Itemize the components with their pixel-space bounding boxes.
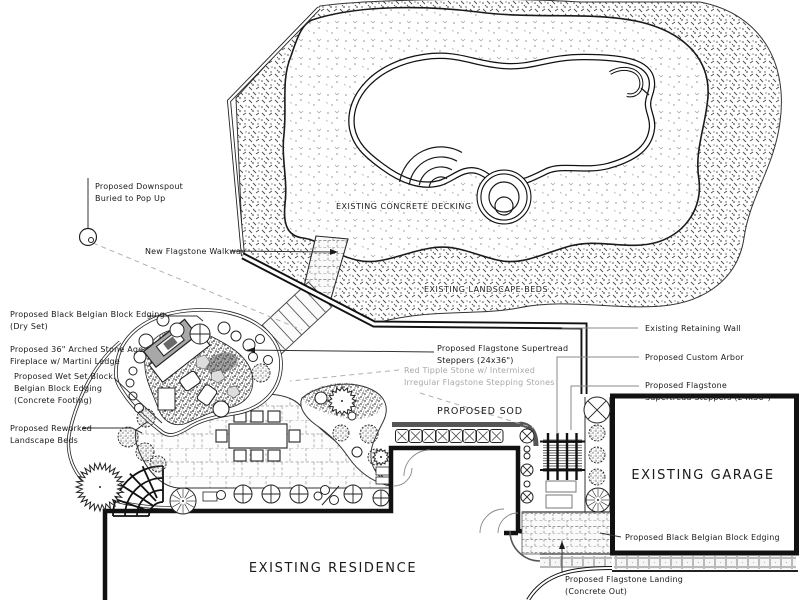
supertread-stepper-icon xyxy=(463,430,476,443)
shrub-icon xyxy=(330,496,339,505)
wheel-shrub-icon xyxy=(586,488,610,512)
supertread-stepper-icon xyxy=(450,430,463,443)
stippled-shrub-icon xyxy=(150,456,166,472)
shrub-icon xyxy=(524,453,530,459)
stippled-shrub-icon xyxy=(252,364,270,382)
label-residence: EXISTING RESIDENCE xyxy=(249,561,417,576)
callout-steppers-right-line1: Proposed Flagstone xyxy=(645,381,727,390)
shrub-icon xyxy=(348,412,356,420)
stippled-shrub-icon xyxy=(589,447,605,463)
landscape-plan-canvas: Proposed Downspout Buried to Pop Up New … xyxy=(0,0,800,600)
supertread-stepper-icon xyxy=(409,430,422,443)
label-concrete-decking: EXISTING CONCRETE DECKING xyxy=(336,202,472,211)
stippled-shrub-icon xyxy=(589,469,605,485)
stepper-icon xyxy=(584,397,610,423)
shrub-icon xyxy=(126,379,134,387)
label-landscape-beds: EXISTING LANDSCAPE BEDS xyxy=(424,285,548,294)
callout-wetset-line1: Proposed Wet Set Block xyxy=(14,372,113,381)
callout-walkway: New Flagstone Walkway xyxy=(145,247,246,256)
stepper-icon xyxy=(521,491,533,503)
tree-icon xyxy=(290,485,308,503)
callout-reworked-line2: Landscape Beds xyxy=(10,436,78,445)
callout-dryset-line1: Proposed Black Belgian Block Edging xyxy=(10,310,165,319)
callout-fireplace-line2: Fireplace w/ Martini Ledge xyxy=(10,357,120,366)
spiky-tree-icon xyxy=(328,387,356,415)
flagstone-landing xyxy=(522,512,612,554)
spa xyxy=(479,172,529,222)
callout-retaining-wall: Existing Retaining Wall xyxy=(645,324,741,333)
stippled-shrub-icon xyxy=(137,409,155,427)
stippled-shrub-icon xyxy=(360,425,378,443)
stepper-icon xyxy=(520,429,534,443)
shrub-icon xyxy=(524,481,530,487)
callout-steppers-mid-line1: Proposed Flagstone Supertread xyxy=(437,344,568,353)
stippled-shrub-icon xyxy=(589,425,605,441)
callout-wetset-line2: Belgian Block Edging xyxy=(14,384,102,393)
shrub-icon xyxy=(243,339,255,351)
callout-landing-line1: Proposed Flagstone Landing xyxy=(565,575,683,584)
supertread-stepper-icon xyxy=(396,430,409,443)
callout-dryset-line2: (Dry Set) xyxy=(10,322,48,331)
shrub-icon xyxy=(129,367,137,375)
shrub-icon xyxy=(352,447,362,457)
label-proposed-sod: PROPOSED SOD xyxy=(437,406,523,417)
stippled-shrub-icon xyxy=(136,443,154,461)
callout-downspout-line1: Proposed Downspout xyxy=(95,182,183,191)
shrub-icon xyxy=(524,446,530,452)
supertread-stepper-icon xyxy=(436,430,449,443)
supertread-steppers-row xyxy=(396,430,504,443)
downspout-symbol xyxy=(80,229,97,246)
custom-arbor xyxy=(540,433,585,480)
callout-tipple-line1: Red Tipple Stone w/ Intermixed xyxy=(404,366,535,375)
tree-icon xyxy=(190,324,210,344)
callout-steppers-mid-line2: Steppers (24x36") xyxy=(437,356,514,365)
tree-icon xyxy=(373,490,389,506)
shrub-icon xyxy=(218,322,230,334)
shrub-icon xyxy=(217,491,226,500)
supertread-stepper-icon xyxy=(423,430,436,443)
shrub-icon xyxy=(249,353,258,362)
shrub-icon xyxy=(321,486,330,495)
callout-reworked-line1: Proposed Reworked xyxy=(10,424,92,433)
spiky-tree-icon xyxy=(76,463,124,511)
callout-steppers-right-line2: Supertread Steppers (24x36") xyxy=(645,393,771,402)
shrub-icon xyxy=(264,356,273,365)
shrub-icon xyxy=(170,323,184,337)
supertread-stepper-icon xyxy=(490,430,503,443)
shrub-icon xyxy=(256,335,265,344)
shrub-icon xyxy=(315,392,327,404)
label-garage: EXISTING GARAGE xyxy=(631,468,774,483)
shrub-icon xyxy=(314,492,322,500)
stippled-shrub-icon xyxy=(333,425,349,441)
tree-icon xyxy=(344,485,362,503)
stepper-icon xyxy=(521,464,533,476)
tree-icon xyxy=(262,485,280,503)
callout-downspout-line2: Buried to Pop Up xyxy=(95,194,165,203)
callout-arbor: Proposed Custom Arbor xyxy=(645,353,744,362)
callout-tipple-line2: Irregular Flagstone Stepping Stones xyxy=(404,378,555,387)
callout-edging-right: Proposed Black Belgian Block Edging xyxy=(625,533,780,542)
wheel-shrub-icon xyxy=(170,488,196,514)
landscape-plan: Proposed Downspout Buried to Pop Up New … xyxy=(0,0,800,600)
callout-wetset-line3: (Concrete Footing) xyxy=(14,396,92,405)
shrub-icon xyxy=(231,331,241,341)
callout-landing-line2: (Concrete Out) xyxy=(565,587,627,596)
arbor-planters xyxy=(546,481,576,508)
callout-fireplace-line1: Proposed 36" Arched Stone Age xyxy=(10,345,143,354)
supertread-stepper-icon xyxy=(477,430,490,443)
tree-icon xyxy=(234,485,252,503)
